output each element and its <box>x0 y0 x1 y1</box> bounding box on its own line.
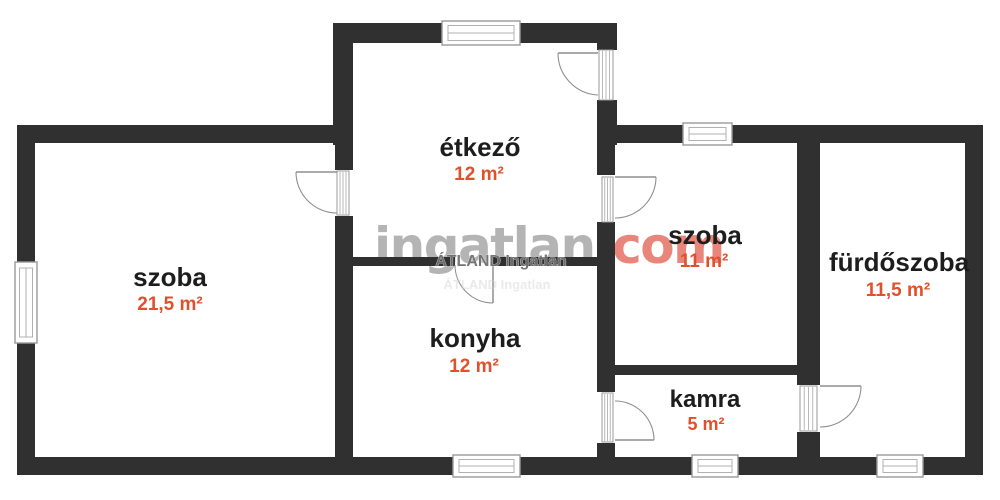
door-swing <box>820 386 861 427</box>
room-label-etkezo: étkező <box>440 132 521 162</box>
room-area-etkezo: 12 m² <box>454 164 504 185</box>
window <box>692 455 738 477</box>
door-jamb <box>800 386 817 431</box>
wall <box>597 143 615 175</box>
room-area-szoba-nagy: 21,5 m² <box>137 294 202 315</box>
room-area-konyha: 12 m² <box>449 356 499 377</box>
door-swing <box>296 172 337 213</box>
agency-watermark-ghost: ÁTLAND Ingatlan <box>444 277 551 292</box>
window <box>453 455 520 477</box>
wall <box>738 457 877 475</box>
wall <box>333 23 442 43</box>
room-label-szoba-kis: szoba <box>668 220 742 250</box>
window <box>683 123 732 145</box>
room-area-furdoszoba: 11,5 m² <box>866 280 930 301</box>
floorplan-image: ingatlan.com szoba21,5 m²étkező12 m²kony… <box>0 0 1000 500</box>
wall <box>17 125 353 143</box>
wall <box>17 457 453 475</box>
room-area-szoba-kis: 11 m² <box>680 251 729 272</box>
room-label-furdoszoba: fürdőszoba <box>829 247 970 277</box>
wall <box>520 457 692 475</box>
door-jamb <box>599 50 613 100</box>
room-label-szoba-nagy: szoba <box>133 262 207 292</box>
wall <box>335 143 353 170</box>
door-jamb <box>337 171 349 215</box>
wall <box>597 443 615 457</box>
door-swing <box>615 177 656 218</box>
wall <box>732 125 983 143</box>
wall <box>797 143 820 385</box>
wall <box>17 343 35 475</box>
room-label-kamra: kamra <box>670 386 741 413</box>
door-jamb <box>602 393 613 442</box>
wall <box>17 125 35 262</box>
room-label-konyha: konyha <box>429 323 521 353</box>
door-swing <box>615 401 654 440</box>
wall <box>923 457 983 475</box>
room-labels-layer: szoba21,5 m²étkező12 m²konyha12 m²szoba1… <box>133 132 969 434</box>
window <box>15 262 37 343</box>
door-swing <box>558 53 598 95</box>
agency-watermark-text: ÁTLAND Ingatlan <box>435 251 567 270</box>
floorplan-svg: ingatlan.com szoba21,5 m²étkező12 m²kony… <box>0 0 1000 500</box>
wall <box>797 432 820 457</box>
wall <box>597 125 683 143</box>
window <box>442 21 520 45</box>
wall <box>615 365 800 375</box>
room-area-kamra: 5 m² <box>687 414 724 434</box>
wall <box>597 222 615 392</box>
window <box>877 455 923 477</box>
door-jamb <box>602 177 613 222</box>
wall <box>965 125 983 475</box>
wall <box>335 216 353 457</box>
wall <box>597 23 617 50</box>
